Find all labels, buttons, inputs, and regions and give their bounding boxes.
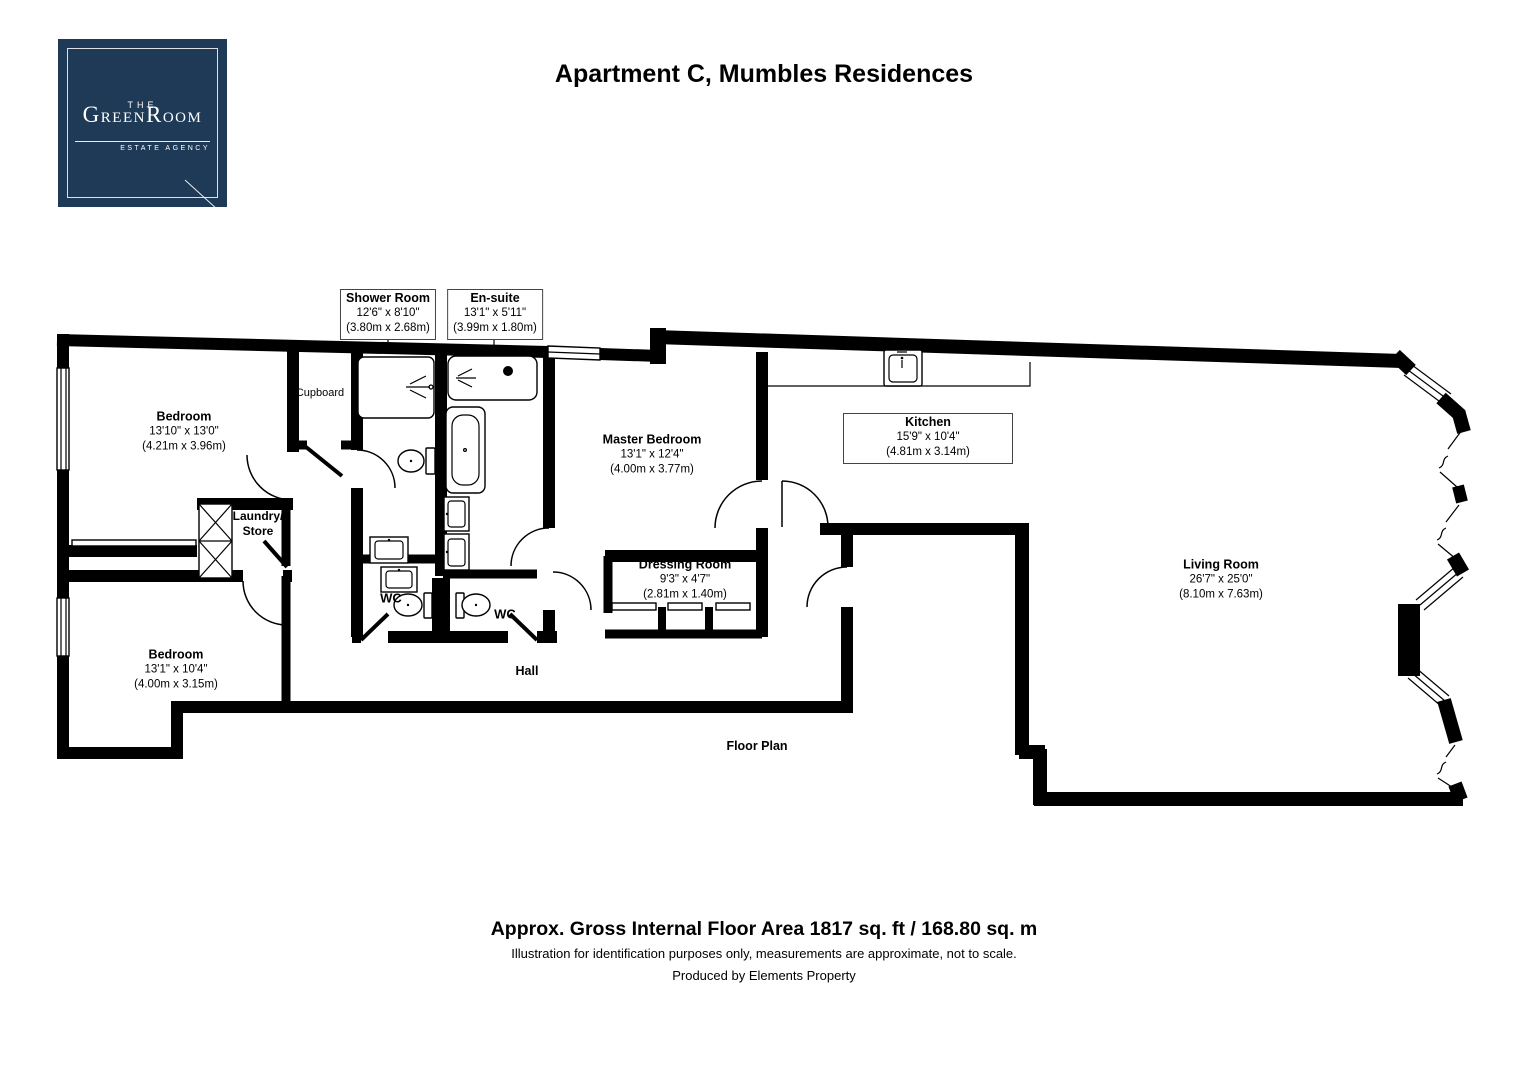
room-dims-metric: (4.00m x 3.77m) (603, 463, 702, 478)
floor-plan-label: Floor Plan (726, 739, 787, 753)
shower-room-door-arc (357, 450, 395, 488)
room-dims-imperial: 26'7" x 25'0" (1179, 573, 1263, 588)
room-dims-imperial: 13'10" x 13'0" (142, 425, 226, 440)
room-dims-imperial: 15'9" x 10'4" (849, 430, 1007, 445)
hall-label: Hall (516, 664, 539, 678)
room-name: Bedroom (142, 410, 226, 425)
bedroom2-door-arc (243, 581, 287, 625)
room-label-living-room: Living Room 26'7" x 25'0" (8.10m x 7.63m… (1179, 558, 1263, 603)
room-dims-metric: (3.80m x 2.68m) (346, 321, 430, 336)
room-dims-metric: (8.10m x 7.63m) (1179, 588, 1263, 603)
shower-tray-shower-room (358, 357, 434, 418)
disclaimer-text: Illustration for identification purposes… (0, 946, 1528, 961)
producer-text: Produced by Elements Property (0, 968, 1528, 983)
toilet-shower-room (398, 448, 435, 474)
room-name: Master Bedroom (603, 433, 702, 448)
room-dims-metric: (4.21m x 3.96m) (142, 440, 226, 455)
master-hall-door-arc (715, 481, 762, 528)
wc-right-label: WC (494, 607, 516, 622)
room-name: Living Room (1179, 558, 1263, 573)
room-name: Kitchen (849, 415, 1007, 430)
toilet-wc-right (456, 593, 490, 618)
room-dims-metric: (2.81m x 1.40m) (639, 588, 731, 603)
room-dims-metric: (4.00m x 3.15m) (134, 678, 218, 693)
dressing-room-wardrobes (612, 603, 750, 634)
wc-left-door-leaf (361, 614, 388, 640)
room-label-bedroom-1: Bedroom 13'10" x 13'0" (4.21m x 3.96m) (142, 410, 226, 455)
basin-wc-left (381, 567, 417, 592)
room-dims-imperial: 13'1" x 10'4" (134, 663, 218, 678)
room-label-en-suite: En-suite 13'1" x 5'11" (3.99m x 1.80m) (447, 289, 543, 340)
room-name: Shower Room (346, 291, 430, 306)
shower-tray-ensuite (448, 356, 537, 400)
window-seat-strip (72, 540, 196, 546)
cupboard-label: Cupboard (296, 387, 344, 399)
room-dims-imperial: 13'1" x 12'4" (603, 448, 702, 463)
room-label-master-bedroom: Master Bedroom 13'1" x 12'4" (4.00m x 3.… (603, 433, 702, 478)
room-dims-metric: (3.99m x 1.80m) (453, 321, 537, 336)
bay-wall (1395, 355, 1464, 800)
room-dims-imperial: 12'6" x 8'10" (346, 306, 430, 321)
basin-units-ensuite (444, 497, 469, 570)
room-label-shower-room: Shower Room 12'6" x 8'10" (3.80m x 2.68m… (340, 289, 436, 340)
room-label-bedroom-2: Bedroom 13'1" x 10'4" (4.00m x 3.15m) (134, 648, 218, 693)
laundry-store-label-line1: Laundry/ (233, 509, 284, 523)
basin-shower-room (370, 537, 408, 563)
room-name: En-suite (453, 291, 537, 306)
kitchen-door (782, 481, 828, 527)
wc-left-label: WC (380, 591, 402, 606)
room-label-kitchen: Kitchen 15'9" x 10'4" (4.81m x 3.14m) (843, 413, 1013, 464)
bedroom1-door-arc (247, 455, 292, 500)
room-name: Bedroom (134, 648, 218, 663)
master-bedroom-door-arc (553, 572, 591, 610)
living-room-door-arc (807, 567, 847, 607)
room-dims-imperial: 13'1" x 5'11" (453, 306, 537, 321)
room-dims-metric: (4.81m x 3.14m) (849, 445, 1007, 460)
bathtub (446, 407, 485, 493)
ensuite-door-arc (511, 528, 549, 566)
room-name: Dressing Room (639, 558, 731, 573)
laundry-unit (199, 504, 232, 578)
floor-area-text: Approx. Gross Internal Floor Area 1817 s… (0, 918, 1528, 941)
room-dims-imperial: 9'3" x 4'7" (639, 573, 731, 588)
laundry-store-label-line2: Store (243, 524, 274, 538)
floor-plan-page: THE GREENROOM ESTATE AGENCY Apartment C,… (0, 0, 1528, 1080)
cupboard-door-leaf (306, 447, 342, 476)
room-label-dressing-room: Dressing Room 9'3" x 4'7" (2.81m x 1.40m… (639, 558, 731, 603)
kitchen-counter (765, 350, 1030, 386)
